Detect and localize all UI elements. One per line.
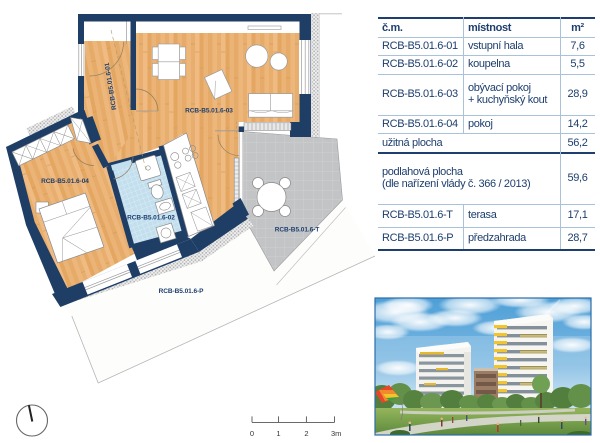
svg-text:2: 2 bbox=[304, 429, 308, 438]
svg-text:RCB-B5.01.6-P: RCB-B5.01.6-P bbox=[159, 288, 205, 295]
svg-text:3m: 3m bbox=[331, 429, 341, 438]
svg-text:1: 1 bbox=[276, 429, 280, 438]
svg-text:RCB-B5.01.6-04: RCB-B5.01.6-04 bbox=[41, 178, 89, 185]
svg-text:RCB-B5.01.6-03: RCB-B5.01.6-03 bbox=[185, 107, 233, 114]
svg-text:RCB-B5.01.6-02: RCB-B5.01.6-02 bbox=[127, 215, 175, 222]
svg-text:0: 0 bbox=[250, 429, 254, 438]
svg-text:RCB-B5.01.6-T: RCB-B5.01.6-T bbox=[275, 226, 320, 233]
